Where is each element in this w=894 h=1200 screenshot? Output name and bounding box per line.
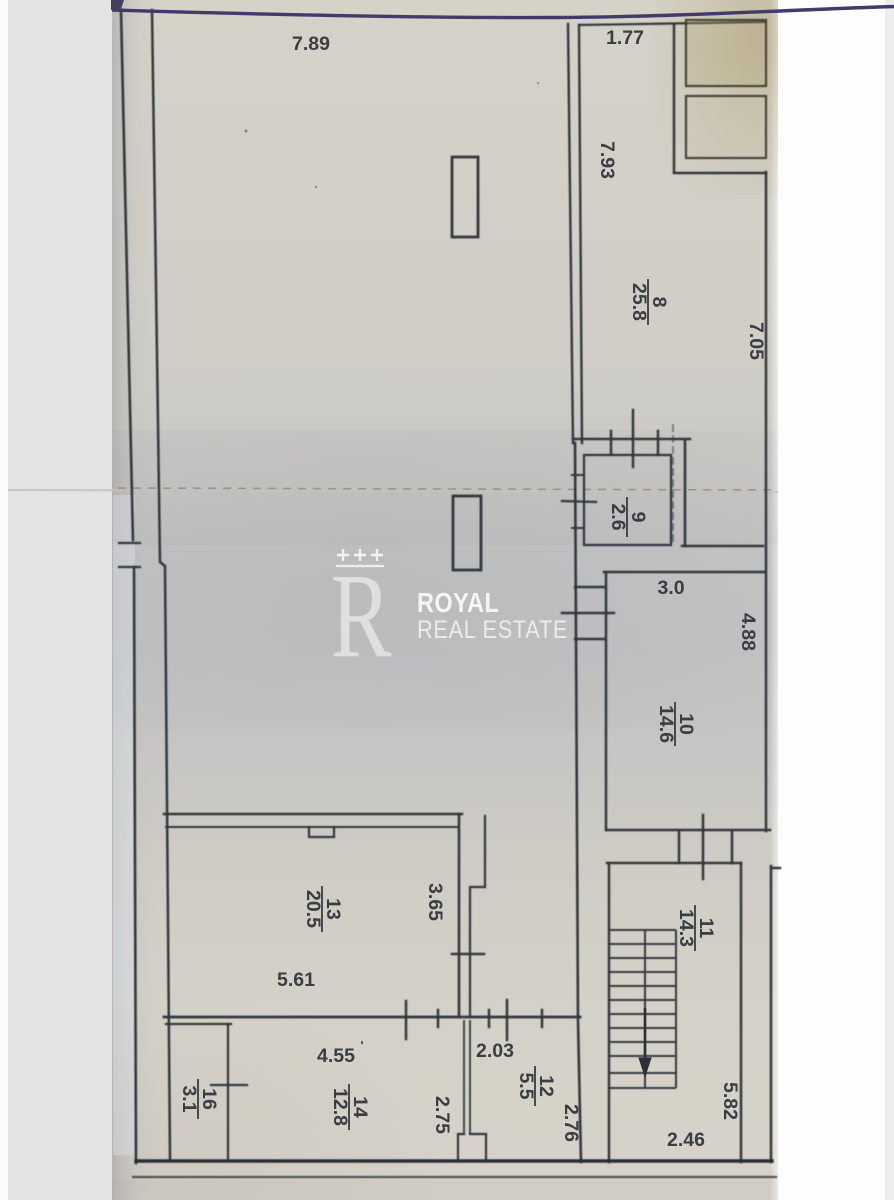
svg-text:5.82: 5.82 (719, 1082, 741, 1120)
svg-text:14: 14 (349, 1096, 371, 1118)
svg-text:9: 9 (627, 512, 649, 523)
svg-text:16: 16 (198, 1088, 220, 1110)
svg-text:7.89: 7.89 (292, 33, 330, 55)
svg-text:12.8: 12.8 (329, 1088, 351, 1126)
svg-text:2.03: 2.03 (476, 1040, 514, 1062)
svg-text:25.8: 25.8 (628, 283, 650, 321)
svg-text:14.3: 14.3 (675, 909, 697, 947)
svg-text:1.77: 1.77 (606, 27, 644, 49)
svg-text:11: 11 (695, 918, 717, 939)
svg-text:4.88: 4.88 (737, 613, 759, 651)
svg-text:2.46: 2.46 (667, 1129, 705, 1151)
svg-text:7.05: 7.05 (745, 322, 767, 360)
svg-text:2.75: 2.75 (431, 1096, 453, 1134)
svg-text:14.6: 14.6 (655, 705, 677, 743)
svg-text:12: 12 (535, 1075, 557, 1097)
svg-text:2.76: 2.76 (560, 1104, 582, 1142)
svg-text:R: R (331, 550, 392, 684)
svg-text:8: 8 (648, 297, 670, 308)
svg-text:20.5: 20.5 (302, 890, 324, 928)
svg-text:3.65: 3.65 (424, 883, 446, 921)
svg-text:3.1: 3.1 (178, 1085, 200, 1112)
svg-text:5.61: 5.61 (277, 969, 315, 991)
svg-text:5.5: 5.5 (515, 1072, 537, 1099)
svg-text:10: 10 (675, 713, 697, 735)
svg-text:REAL ESTATE: REAL ESTATE (417, 616, 568, 644)
svg-text:3.0: 3.0 (657, 577, 684, 599)
svg-text:2.6: 2.6 (607, 503, 629, 530)
svg-text:4.55: 4.55 (317, 1045, 355, 1067)
svg-text:': ' (360, 1038, 363, 1053)
svg-text:ROYAL: ROYAL (417, 588, 499, 618)
svg-text:7.93: 7.93 (596, 141, 618, 179)
svg-text:13: 13 (322, 898, 344, 920)
